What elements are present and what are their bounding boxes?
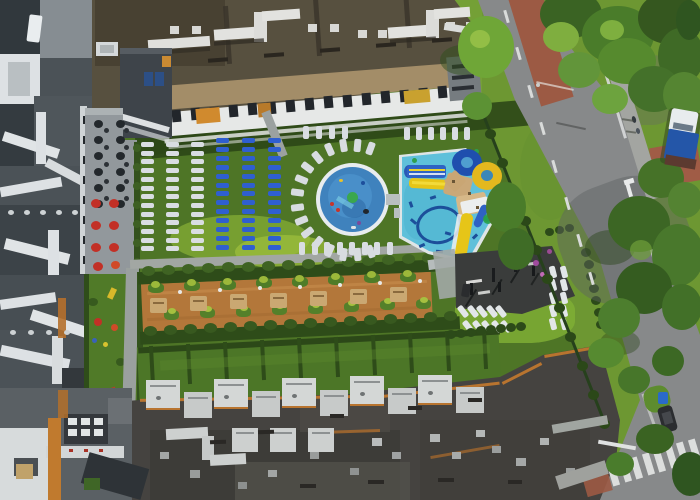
- patio-table: [94, 168, 103, 176]
- hedge: [324, 317, 337, 327]
- gym-equipment: [532, 266, 535, 276]
- sun-lounger-blue: [216, 156, 229, 161]
- pergola-slat: [273, 297, 284, 299]
- hedge: [496, 324, 506, 333]
- sun-lounger-white: [404, 127, 410, 140]
- sun-lounger-blue: [268, 191, 281, 196]
- sun-lounger-white: [141, 177, 154, 182]
- patio-table: [94, 152, 103, 160]
- pool-toy: [339, 179, 343, 182]
- sun-lounger-blue: [242, 138, 255, 143]
- sun-lounger-white: [339, 247, 348, 261]
- tree-highlight: [630, 240, 652, 260]
- planter: [331, 273, 340, 280]
- terrace-railing: [274, 432, 292, 434]
- sun-lounger-white: [440, 127, 446, 140]
- roof-ac-unit: [492, 446, 501, 453]
- terrace-railing: [188, 397, 208, 399]
- pergola-slat: [393, 291, 404, 293]
- hedge: [322, 258, 335, 268]
- tree: [558, 52, 600, 88]
- hedge: [456, 329, 466, 338]
- terrace-railing: [256, 396, 276, 398]
- hedge: [262, 261, 275, 271]
- pool-toy: [351, 226, 356, 229]
- terrace-railing: [150, 385, 176, 387]
- sun-lounger-white: [428, 127, 434, 140]
- sun-lounger-blue: [268, 245, 281, 250]
- sun-lounger-white: [353, 248, 361, 262]
- sun-lounger-blue: [242, 156, 255, 161]
- pergola: [230, 294, 247, 309]
- sun-lounger-blue: [242, 245, 255, 250]
- roof-ac-unit: [476, 430, 485, 437]
- tree: [662, 284, 700, 330]
- red-umbrella: [111, 261, 120, 269]
- flower-pot: [533, 260, 539, 266]
- terrace-railing: [354, 381, 380, 383]
- hedge: [133, 201, 141, 209]
- roof-ac-unit: [94, 429, 103, 436]
- planter: [151, 281, 160, 288]
- tree: [652, 346, 684, 376]
- roof-ac-unit: [81, 429, 90, 436]
- roof-trim: [282, 406, 316, 408]
- sun-lounger-white: [166, 238, 179, 243]
- facade-window: [437, 86, 447, 99]
- hedge: [142, 266, 155, 276]
- roof-box: [16, 464, 33, 479]
- facade-accent-orange: [58, 390, 68, 418]
- hedge: [284, 319, 297, 329]
- terrace-railing: [236, 432, 254, 434]
- sun-lounger-white: [166, 142, 179, 147]
- sun-lounger-white: [191, 186, 204, 191]
- tree: [543, 22, 579, 52]
- sun-lounger-blue: [268, 174, 281, 179]
- building-roof: [40, 0, 92, 58]
- roof-terrace: [320, 390, 348, 416]
- patio-chair: [124, 128, 129, 133]
- sun-lounger-white: [166, 220, 179, 225]
- sun-lounger-blue: [242, 147, 255, 152]
- garden-patch: [84, 478, 100, 490]
- hedge: [184, 324, 197, 334]
- playground-equipment: [103, 342, 108, 347]
- terrace-railing: [460, 392, 480, 394]
- roof-vent: [210, 440, 226, 445]
- patio-chair: [124, 196, 129, 201]
- roof-ac-unit: [8, 210, 14, 215]
- sun-lounger-white: [141, 168, 154, 173]
- sun-lounger-white: [452, 127, 458, 140]
- patio-table: [116, 120, 125, 128]
- pool-toy: [357, 221, 361, 225]
- sun-lounger-white: [166, 194, 179, 199]
- roof-ac-unit: [170, 26, 179, 34]
- patio-chair: [104, 179, 109, 184]
- facade-window: [361, 93, 371, 106]
- hedge: [364, 315, 377, 325]
- roof-duct: [210, 453, 247, 466]
- roof-ac-unit: [308, 24, 317, 32]
- sun-lounger-white: [339, 139, 348, 153]
- sun-lounger-white: [291, 203, 305, 212]
- terrace-railing: [324, 395, 344, 397]
- patio-table: [116, 168, 125, 176]
- pergola-slat: [353, 293, 364, 295]
- sun-lounger-white: [387, 242, 393, 255]
- pergola: [270, 293, 287, 308]
- wing-ridge: [120, 48, 172, 54]
- pool-toy: [330, 202, 334, 206]
- hedge: [404, 313, 417, 323]
- terrace-railing: [286, 383, 312, 385]
- patio-edge: [85, 108, 123, 115]
- hedge: [554, 303, 565, 313]
- sun-lounger-blue: [216, 138, 229, 143]
- roof-ac-unit: [190, 470, 200, 478]
- facade-window: [171, 110, 181, 123]
- pool-toy: [336, 208, 340, 212]
- sun-lounger-white: [191, 168, 204, 173]
- tree: [462, 92, 492, 120]
- sun-lounger-blue: [268, 200, 281, 205]
- hedge: [133, 239, 141, 247]
- pergola: [150, 298, 167, 313]
- roof-ridge: [36, 112, 46, 164]
- hedge: [446, 330, 456, 339]
- sun-lounger-white: [166, 246, 179, 251]
- sun-lounger-white: [141, 212, 154, 217]
- patio-chair: [124, 179, 129, 184]
- patio-table: [94, 120, 103, 128]
- roof-ac-unit: [68, 429, 77, 436]
- sun-lounger-blue: [242, 191, 255, 196]
- sun-lounger-white: [141, 151, 154, 156]
- sun-lounger-blue: [268, 209, 281, 214]
- hedge: [424, 312, 437, 322]
- sun-lounger-blue: [216, 165, 229, 170]
- red-umbrella: [109, 243, 119, 252]
- roof-vent: [69, 449, 73, 452]
- hedge: [506, 323, 516, 332]
- patio-table: [116, 152, 125, 160]
- sun-lounger-white: [166, 168, 179, 173]
- roof-ac-unit: [81, 418, 90, 425]
- roof-trim: [418, 403, 452, 405]
- roof-ac-unit: [392, 452, 401, 459]
- sun-lounger-blue: [268, 183, 281, 188]
- sun-lounger-white: [166, 159, 179, 164]
- hedge: [384, 314, 397, 324]
- roof-box-inset: [100, 45, 114, 53]
- tree: [636, 424, 674, 454]
- red-umbrella: [91, 221, 101, 230]
- patio-chair: [104, 162, 109, 167]
- hedge: [466, 328, 476, 337]
- roof-ac-unit: [46, 330, 52, 335]
- sun-lounger-white: [191, 177, 204, 182]
- sun-lounger-white: [141, 246, 154, 251]
- pergola: [350, 289, 367, 304]
- roof-vent: [368, 480, 384, 484]
- sun-lounger-white: [141, 194, 154, 199]
- tree: [672, 452, 700, 496]
- roof-ac-unit: [192, 26, 201, 34]
- roof-ac-unit: [56, 210, 62, 215]
- sun-lounger-white: [166, 151, 179, 156]
- sun-lounger-blue: [268, 227, 281, 232]
- sun-lounger-white: [141, 142, 154, 147]
- hedge: [545, 228, 554, 236]
- sun-lounger-white: [166, 186, 179, 191]
- roof-vent: [408, 406, 422, 410]
- road-sign: [658, 392, 668, 404]
- playground-equipment: [111, 324, 118, 331]
- sun-lounger-blue: [216, 191, 229, 196]
- roof-vent: [99, 449, 103, 452]
- sun-lounger-white: [303, 126, 309, 139]
- sun-lounger-blue: [242, 218, 255, 223]
- starfish-decoration: [412, 158, 417, 163]
- bush: [88, 298, 98, 306]
- hedge: [133, 182, 141, 190]
- roof-trim: [146, 408, 180, 410]
- sun-lounger-white: [166, 212, 179, 217]
- roof-ac-unit: [378, 30, 387, 38]
- roof-ac-unit: [372, 438, 382, 446]
- sun-lounger-blue: [242, 165, 255, 170]
- sun-lounger-blue: [216, 209, 229, 214]
- sun-lounger-white: [191, 220, 204, 225]
- roof-vent: [84, 449, 88, 452]
- hedge: [304, 318, 317, 328]
- roof-terrace: [388, 388, 416, 414]
- facade-accent-orange: [48, 418, 61, 500]
- sun-lounger-white: [141, 238, 154, 243]
- roof-ridge: [48, 230, 59, 276]
- playground-equipment: [92, 338, 97, 343]
- sun-lounger-blue: [216, 245, 229, 250]
- planter: [403, 270, 412, 277]
- terrace-railing: [392, 393, 412, 395]
- terrace-furniture: [224, 395, 229, 399]
- terrace-furniture: [156, 396, 161, 400]
- tree-highlight: [600, 20, 624, 40]
- sun-lounger-white: [299, 242, 305, 255]
- deck-furniture: [178, 290, 182, 294]
- deck-furniture: [378, 281, 382, 285]
- sun-lounger-blue: [216, 183, 229, 188]
- sun-lounger-blue: [268, 218, 281, 223]
- patio-chair: [124, 162, 129, 167]
- roof-vent: [438, 478, 454, 482]
- sun-lounger-white: [416, 127, 422, 140]
- sun-lounger-white: [166, 203, 179, 208]
- pool-toy: [363, 209, 369, 214]
- hedge: [444, 311, 457, 321]
- roof-trim: [214, 407, 248, 409]
- solar-panel: [155, 72, 164, 86]
- roof-ac-unit: [310, 452, 319, 459]
- roof-vent: [258, 430, 274, 435]
- lamp-post: [536, 83, 540, 87]
- sun-lounger-white: [329, 126, 335, 139]
- sun-lounger-white: [191, 151, 204, 156]
- hedge: [204, 323, 217, 333]
- roof-vent: [508, 480, 522, 484]
- terrace-railing: [218, 384, 244, 386]
- patio-chair: [104, 145, 109, 150]
- pergola-slat: [313, 295, 324, 297]
- tree: [592, 84, 628, 114]
- pool-deck: [386, 194, 400, 205]
- sun-lounger-white: [191, 142, 204, 147]
- roof-ac-unit: [40, 210, 46, 215]
- facade-window: [304, 98, 314, 111]
- terrace-furniture: [292, 394, 297, 398]
- patio-table: [116, 184, 125, 192]
- sun-lounger-white: [141, 220, 154, 225]
- hedge: [133, 163, 141, 171]
- sun-lounger-blue: [216, 236, 229, 241]
- facade-accent-orange: [162, 56, 171, 67]
- deck-furniture: [338, 283, 342, 287]
- deck-furniture: [298, 285, 302, 289]
- roof-vent: [468, 398, 482, 402]
- patio-chair: [104, 128, 109, 133]
- roof-ac-unit: [160, 452, 169, 459]
- sun-lounger-blue: [268, 236, 281, 241]
- pergola: [390, 287, 407, 302]
- roof-ac-unit: [268, 470, 277, 477]
- sun-lounger-white: [141, 203, 154, 208]
- mat-slide-stripe: [409, 173, 445, 175]
- facade-window: [380, 91, 390, 104]
- sun-lounger-white: [141, 186, 154, 191]
- facade-window: [342, 94, 352, 107]
- hedge: [133, 144, 141, 152]
- hedge: [264, 320, 277, 330]
- pool-step: [394, 208, 400, 218]
- sun-lounger-white: [166, 177, 179, 182]
- red-umbrella: [91, 199, 101, 208]
- facade-accent-orange: [195, 107, 220, 124]
- roof-ac-unit: [94, 418, 103, 425]
- tree: [668, 182, 700, 218]
- sun-lounger-blue: [268, 165, 281, 170]
- red-umbrella: [91, 243, 101, 252]
- roof-ac-unit: [430, 434, 440, 442]
- sun-lounger-white: [191, 194, 204, 199]
- pergola-slat: [233, 298, 244, 300]
- hedge: [224, 322, 237, 332]
- flower-pot: [547, 249, 552, 254]
- tube-slide-hole: [461, 157, 473, 168]
- pergola-slat: [153, 302, 164, 304]
- sun-lounger-blue: [242, 183, 255, 188]
- tree: [606, 452, 634, 476]
- sun-lounger-blue: [216, 147, 229, 152]
- roof-ac-unit: [540, 438, 549, 445]
- roof-ac-unit: [238, 482, 247, 489]
- facade-window: [247, 103, 257, 116]
- pergola: [190, 296, 207, 311]
- roof-ac-unit: [64, 330, 70, 335]
- planter: [420, 297, 428, 303]
- sun-lounger-white: [141, 159, 154, 164]
- sun-lounger-white: [191, 159, 204, 164]
- tree: [458, 16, 514, 78]
- hedge: [588, 390, 599, 400]
- hedge: [516, 322, 526, 331]
- building-roof: [108, 398, 132, 424]
- tube-slide-hole: [481, 170, 493, 181]
- gym-equipment: [492, 268, 495, 282]
- sun-lounger-white: [191, 212, 204, 217]
- tree: [486, 182, 526, 232]
- sun-lounger-white: [316, 126, 322, 139]
- sun-lounger-white: [191, 238, 204, 243]
- patio-chair: [124, 145, 129, 150]
- red-umbrella: [93, 262, 103, 271]
- planter: [168, 308, 176, 314]
- pool-toy: [361, 181, 365, 185]
- planter: [295, 275, 304, 282]
- facade-accent-orange: [403, 89, 430, 104]
- patio-table: [116, 136, 125, 144]
- roof-terrace: [252, 391, 280, 417]
- facade-window: [285, 99, 295, 112]
- red-umbrella: [109, 199, 119, 208]
- roof-terrace: [184, 392, 212, 418]
- tree: [598, 298, 640, 338]
- patio-table: [94, 184, 103, 192]
- sun-lounger-blue: [268, 156, 281, 161]
- sun-lounger-blue: [216, 227, 229, 232]
- hedge: [282, 260, 295, 270]
- sun-lounger-white: [342, 126, 348, 139]
- hedge: [302, 259, 315, 269]
- sun-lounger-white: [353, 138, 361, 152]
- sun-lounger-white: [191, 246, 204, 251]
- mat-slide: [407, 165, 446, 178]
- sun-lounger-blue: [242, 174, 255, 179]
- tree: [588, 338, 624, 368]
- roof-ac-unit: [68, 418, 77, 425]
- hedge: [133, 220, 141, 228]
- sun-lounger-blue: [268, 147, 281, 152]
- roof-ac-unit: [10, 330, 16, 335]
- pergola-slat: [193, 300, 204, 302]
- hedge: [497, 158, 508, 168]
- hedge: [164, 325, 177, 335]
- solar-panel: [144, 72, 153, 86]
- tree-highlight: [470, 30, 490, 48]
- structure-pole: [468, 192, 471, 195]
- sun-lounger-blue: [216, 174, 229, 179]
- sun-lounger-blue: [242, 200, 255, 205]
- roof-ac-unit: [516, 458, 526, 466]
- facade-window: [323, 96, 333, 109]
- patio-chair: [104, 196, 109, 201]
- sun-lounger-white: [464, 127, 470, 140]
- roof-vent: [300, 484, 316, 488]
- hedge: [242, 262, 255, 272]
- sun-lounger-blue: [216, 218, 229, 223]
- tree: [498, 228, 534, 270]
